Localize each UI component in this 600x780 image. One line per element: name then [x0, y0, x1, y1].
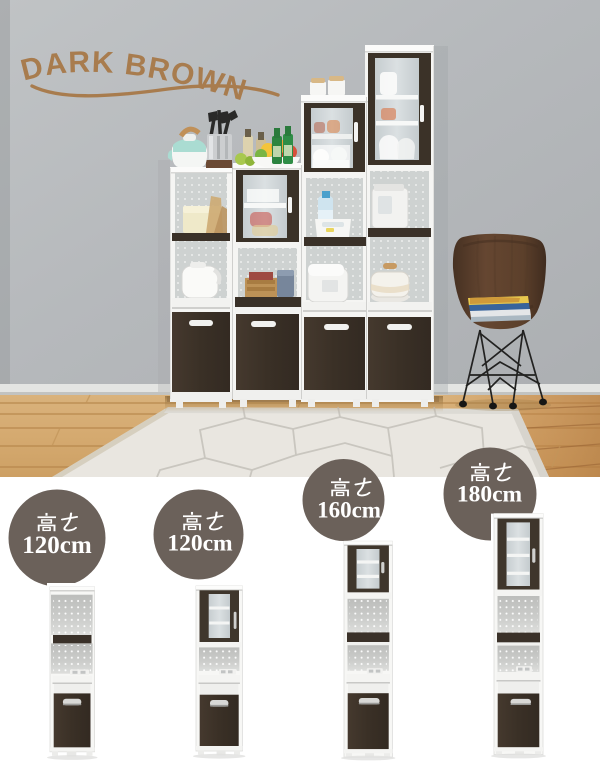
svg-text:120cm: 120cm — [22, 532, 92, 559]
svg-text:180cm: 180cm — [457, 482, 523, 508]
svg-text:160cm: 160cm — [317, 498, 381, 523]
svg-text:120cm: 120cm — [167, 531, 233, 557]
